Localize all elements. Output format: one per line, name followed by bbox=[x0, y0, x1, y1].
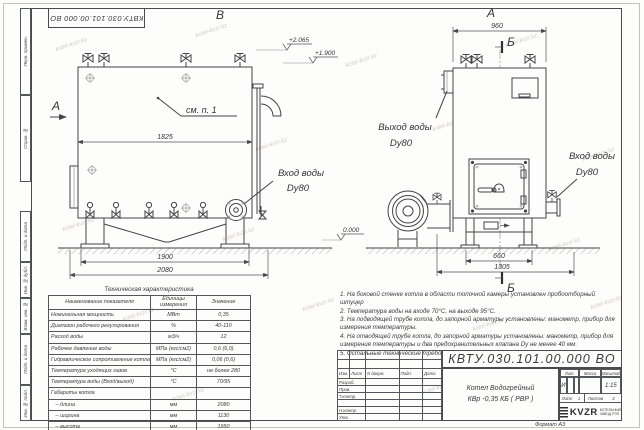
inlet-pipe bbox=[546, 191, 560, 216]
tech-header: Единицы измерения bbox=[151, 296, 197, 310]
rev-cell bbox=[423, 351, 442, 360]
valve-icon bbox=[99, 54, 109, 68]
tech-cell: 40-110 bbox=[197, 321, 251, 332]
tech-cell: % bbox=[151, 321, 197, 332]
tech-cell: Номинальная мощность bbox=[49, 310, 151, 321]
blower-fan bbox=[388, 191, 453, 247]
sign-cell bbox=[399, 400, 423, 407]
technical-notes: 1. На боковой стенке котла в области топ… bbox=[340, 291, 620, 358]
section-label: Б bbox=[507, 35, 515, 49]
valve-icon bbox=[548, 191, 557, 202]
tech-cell: °С bbox=[151, 365, 197, 376]
logo-caption: КОТЕЛЬНЫЙ ЗАВОД РЭП bbox=[600, 408, 621, 417]
col-header: Лист bbox=[350, 369, 366, 379]
sign-cell bbox=[423, 414, 442, 421]
elevation-2065: +2.065 bbox=[256, 37, 312, 50]
view-label-a: А bbox=[51, 99, 60, 113]
note-line: 2. Температура воды на входе 70°С, на вы… bbox=[340, 308, 620, 316]
tech-cell: не более 280 bbox=[197, 365, 251, 376]
mass-value bbox=[579, 377, 600, 394]
tech-cell: 0,6 (6,0) bbox=[197, 343, 251, 354]
rev-cell bbox=[338, 360, 350, 369]
view-label-a-top: А bbox=[486, 6, 495, 20]
tech-cell: Температура уходящих газов bbox=[49, 365, 151, 376]
sheets-value: 2 bbox=[606, 394, 621, 402]
dimension-960: 960 bbox=[453, 23, 546, 62]
note-line: 4. На отводящей трубе котла, до запорной… bbox=[340, 333, 620, 350]
product-name-cell: Котел Водогрейный КВр -0,35 КБ ( РВР ) bbox=[442, 368, 559, 421]
title-block-right: Лит. Масса Масштаб И 1:15 Лист 1 Листов … bbox=[559, 368, 622, 421]
sign-cell bbox=[366, 407, 399, 414]
tech-cell: Габариты котла bbox=[49, 388, 151, 399]
furnace-door bbox=[469, 159, 529, 214]
support-legs bbox=[81, 218, 249, 248]
tech-cell: – ширина bbox=[49, 410, 151, 421]
tech-cell: мм bbox=[151, 421, 197, 430]
sign-cell bbox=[366, 414, 399, 421]
inlet-water-label-right: Вход воды Dy80 bbox=[557, 151, 615, 197]
tech-table: Наименование показателя Единицы измерени… bbox=[48, 295, 251, 430]
tech-cell: Диапазон рабочего регулирования bbox=[49, 321, 151, 332]
product-name-line1: Котел Водогрейный bbox=[467, 384, 535, 395]
outlet-water-label: Выход воды Dy80 bbox=[378, 91, 447, 149]
sign-row-label: Н.контр. bbox=[338, 407, 366, 414]
lit-label: Лит. bbox=[560, 369, 579, 377]
sign-cell bbox=[423, 386, 442, 393]
sign-cell bbox=[423, 400, 442, 407]
sign-cell bbox=[399, 407, 423, 414]
tech-cell: МПа (кгс/см2) bbox=[151, 343, 197, 354]
scale-value: 1:15 bbox=[601, 377, 621, 394]
tech-cell: м3/ч bbox=[151, 332, 197, 343]
tech-cell: мм bbox=[151, 410, 197, 421]
tech-cell: Гидравлическое сопротивление котла bbox=[49, 354, 151, 365]
valve-icon bbox=[433, 193, 441, 204]
outlet-flange bbox=[441, 71, 453, 93]
tech-cell: – высота bbox=[49, 421, 151, 430]
tech-cell bbox=[151, 388, 197, 399]
rev-cell bbox=[399, 351, 423, 360]
tech-cell: °С bbox=[151, 377, 197, 388]
note-line: 1. На боковой стенке котла в области топ… bbox=[340, 291, 620, 308]
boiler-front-view: 960 660 1305 А Б Б bbox=[322, 6, 615, 295]
tech-cell: 70/95 bbox=[197, 377, 251, 388]
sign-row-label bbox=[338, 400, 366, 407]
valve-icon bbox=[235, 54, 245, 68]
col-header: N докум. bbox=[366, 369, 399, 379]
sign-cell bbox=[423, 379, 442, 386]
sheets-label: Листов bbox=[584, 394, 606, 402]
view-a-arrow: А bbox=[50, 99, 66, 117]
sign-cell bbox=[399, 379, 423, 386]
tech-cell: 12 bbox=[197, 332, 251, 343]
tech-header: Значение bbox=[197, 296, 251, 310]
outlet-pipe-elbow bbox=[253, 84, 281, 219]
dim-text: 2080 bbox=[156, 267, 173, 274]
dim-text: 660 bbox=[493, 253, 505, 260]
lit-value: И bbox=[560, 377, 567, 394]
drawing-sheet: kotel-kvzr.kz kotel-kvzr.kz kotel-kvzr.k… bbox=[0, 0, 644, 430]
support-frame bbox=[461, 218, 537, 248]
elevation-0: 0.000 bbox=[322, 227, 364, 240]
tech-header: Наименование показателя bbox=[49, 296, 151, 310]
col-header: Подп. bbox=[399, 369, 423, 379]
control-panel bbox=[512, 78, 538, 98]
tech-cell: Рабочее давление воды bbox=[49, 343, 151, 354]
view-label-b: В bbox=[216, 8, 224, 22]
sign-row-label: Т.контр. bbox=[338, 393, 366, 400]
doc-number-cell: КВТУ.030.101.00.000 ВО bbox=[442, 350, 622, 368]
valve-icon bbox=[472, 55, 482, 69]
elevation-1900: +1.900 bbox=[283, 50, 338, 63]
boiler-side-view: 1825 1900 2080 см. п. 1 А bbox=[50, 8, 338, 279]
sign-row-label: Пров. bbox=[338, 386, 366, 393]
sign-cell bbox=[366, 386, 399, 393]
rev-cell bbox=[423, 360, 442, 369]
rev-cell bbox=[338, 351, 350, 360]
tech-cell: МПа (кгс/см2) bbox=[151, 354, 197, 365]
title-block: КВТУ.030.101.00.000 ВО Изм. Лист N докум… bbox=[337, 350, 622, 421]
ground-hatch bbox=[58, 249, 332, 255]
inlet-label-line1: Вход воды bbox=[278, 168, 324, 179]
rev-cell bbox=[399, 360, 423, 369]
valve-icon bbox=[83, 54, 93, 68]
sign-row-label: Утв. bbox=[338, 414, 366, 421]
tech-cell: 1130 bbox=[197, 410, 251, 421]
tech-table-title: Техническая характеристика bbox=[48, 286, 250, 295]
coil-logo-icon bbox=[560, 407, 568, 418]
inlet-water-label: Вход воды Dy80 bbox=[244, 168, 324, 204]
title-block-signatures: Изм. Лист N докум. Подп. Дата Разраб. Пр… bbox=[337, 350, 442, 421]
sign-cell bbox=[399, 386, 423, 393]
lit-cell bbox=[567, 377, 574, 394]
sheet-value: 1 bbox=[574, 394, 584, 402]
tech-cell: 0,06 (0,6) bbox=[197, 354, 251, 365]
rev-cell bbox=[350, 360, 366, 369]
sign-cell bbox=[366, 393, 399, 400]
sign-cell bbox=[399, 414, 423, 421]
tech-cell: 0,35 bbox=[197, 310, 251, 321]
dimension-1305: 1305 bbox=[437, 234, 574, 276]
elev-text: 0.000 bbox=[343, 227, 360, 234]
col-header: Дата bbox=[423, 369, 442, 379]
see-note-text: см. п. 1 bbox=[186, 105, 217, 115]
logo-caption-line2: ЗАВОД РЭП bbox=[600, 412, 621, 416]
inlet-label-line1: Вход воды bbox=[569, 151, 615, 162]
tech-cell: 1950 bbox=[197, 421, 251, 430]
scale-label: Масштаб bbox=[601, 369, 621, 377]
sign-row-label: Разраб. bbox=[338, 379, 366, 386]
manufacturer-logo: KVZR КОТЕЛЬНЫЙ ЗАВОД РЭП bbox=[560, 402, 621, 421]
tech-cell: Расход воды bbox=[49, 332, 151, 343]
rev-cell bbox=[366, 360, 399, 369]
sheet-label: Лист bbox=[560, 394, 574, 402]
tech-cell: МВт bbox=[151, 310, 197, 321]
door-handle bbox=[478, 188, 493, 192]
sign-cell bbox=[423, 393, 442, 400]
valve-icon bbox=[181, 54, 191, 68]
sign-cell bbox=[366, 379, 399, 386]
tech-cell: Температура воды (Вход/выход) bbox=[49, 377, 151, 388]
dim-text: 960 bbox=[491, 23, 503, 30]
logo-word: KVZR bbox=[570, 407, 598, 418]
elev-text: +1.900 bbox=[315, 50, 335, 57]
sign-cell bbox=[423, 407, 442, 414]
note-line: 3. На подводящей трубе котла, до запорно… bbox=[340, 316, 620, 333]
tech-cell bbox=[197, 388, 251, 399]
rev-cell bbox=[350, 351, 366, 360]
tech-characteristics: Техническая характеристика Наименование … bbox=[48, 286, 250, 430]
outlet-label-line2: Dy80 bbox=[390, 138, 413, 149]
elev-text: +2.065 bbox=[289, 37, 309, 44]
outlet-label-line1: Выход воды bbox=[378, 122, 431, 133]
dim-text: 1825 bbox=[157, 134, 173, 141]
dim-text: 1305 bbox=[494, 264, 510, 271]
inlet-flange bbox=[226, 200, 247, 221]
inlet-label-line2: Dy80 bbox=[287, 183, 310, 194]
mass-label: Масса bbox=[579, 369, 600, 377]
valve-icon bbox=[461, 55, 471, 69]
valve-icon bbox=[525, 55, 535, 69]
sign-cell bbox=[399, 393, 423, 400]
tech-cell: – длина bbox=[49, 399, 151, 410]
format-label: Формат А3 bbox=[535, 422, 621, 428]
tech-cell: мм bbox=[151, 399, 197, 410]
ash-damper bbox=[484, 222, 498, 229]
section-mark-b-top: Б bbox=[495, 35, 515, 53]
ground-hatch bbox=[366, 249, 600, 255]
col-header: Изм. bbox=[338, 369, 350, 379]
tech-cell: 2080 bbox=[197, 399, 251, 410]
product-name-line2: КВр -0,35 КБ ( РВР ) bbox=[468, 395, 534, 406]
rev-cell bbox=[366, 351, 399, 360]
inlet-label-line2: Dy80 bbox=[576, 167, 599, 178]
dim-text: 1900 bbox=[157, 254, 173, 261]
sign-cell bbox=[366, 400, 399, 407]
